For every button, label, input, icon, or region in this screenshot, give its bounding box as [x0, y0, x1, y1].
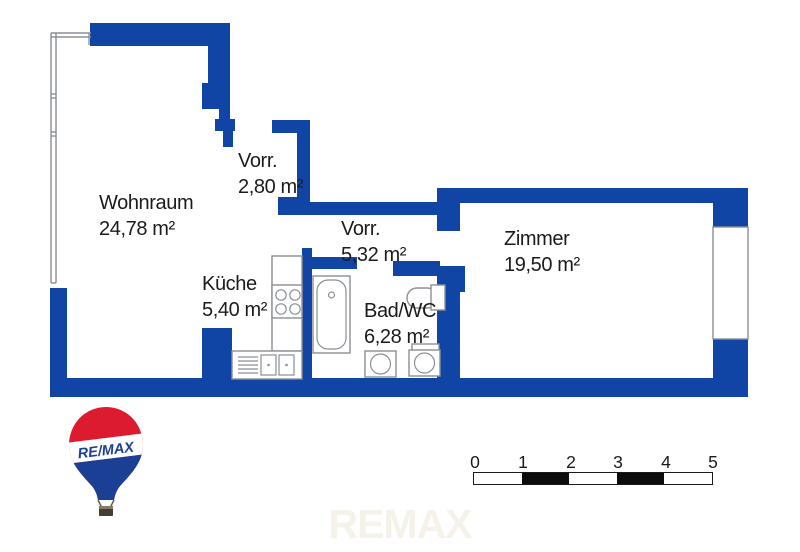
- window-right-icon: [713, 227, 748, 339]
- scale-segment: [522, 473, 570, 484]
- scale-tick: 3: [606, 452, 630, 473]
- scale-bar-segments: [473, 472, 713, 485]
- room-name: Wohnraum: [99, 190, 193, 216]
- floorplan-page: Wohnraum 24,78 m² Vorr. 2,80 m² Vorr. 5,…: [0, 0, 800, 552]
- sink-symbol: [232, 351, 302, 379]
- room-area: 24,78 m²: [99, 216, 193, 242]
- scale-segment: [664, 473, 712, 484]
- room-area: 5,40 m²: [202, 297, 267, 323]
- scale-segment: [617, 473, 665, 484]
- room-label-vorraum-gross: Vorr. 5,32 m²: [341, 216, 406, 268]
- scale-tick: 2: [559, 452, 583, 473]
- watermark: REMAX: [328, 501, 471, 548]
- room-name: Küche: [202, 271, 267, 297]
- scale-tick: 1: [511, 452, 535, 473]
- room-label-kueche: Küche 5,40 m²: [202, 271, 267, 323]
- room-area: 19,50 m²: [504, 252, 580, 278]
- room-area: 5,32 m²: [341, 242, 406, 268]
- scale-tick: 0: [463, 452, 487, 473]
- room-name: Vorr.: [238, 148, 303, 174]
- scale-segment: [474, 473, 522, 484]
- room-label-zimmer: Zimmer 19,50 m²: [504, 226, 580, 278]
- scale-segment: [569, 473, 617, 484]
- room-name: Zimmer: [504, 226, 580, 252]
- room-name: Bad/WC: [364, 298, 436, 324]
- basket-cable: [98, 500, 102, 507]
- room-label-bad-wc: Bad/WC 6,28 m²: [364, 298, 436, 350]
- room-area: 6,28 m²: [364, 324, 436, 350]
- room-label-wohnraum: Wohnraum 24,78 m²: [99, 190, 193, 242]
- scale-tick: 4: [654, 452, 678, 473]
- room-label-vorraum-klein: Vorr. 2,80 m²: [238, 148, 303, 200]
- bathtub-symbol: [313, 276, 350, 353]
- room-area: 2,80 m²: [238, 174, 303, 200]
- window-left-icon: [51, 33, 91, 283]
- remax-balloon-logo: RE/MAX: [58, 404, 154, 520]
- washing-machine-symbol: [365, 351, 396, 377]
- balloon-basket-rim: [99, 506, 113, 509]
- room-name: Vorr.: [341, 216, 406, 242]
- stove-symbol: [272, 285, 302, 318]
- basket-cable: [111, 500, 115, 507]
- scale-tick: 5: [701, 452, 725, 473]
